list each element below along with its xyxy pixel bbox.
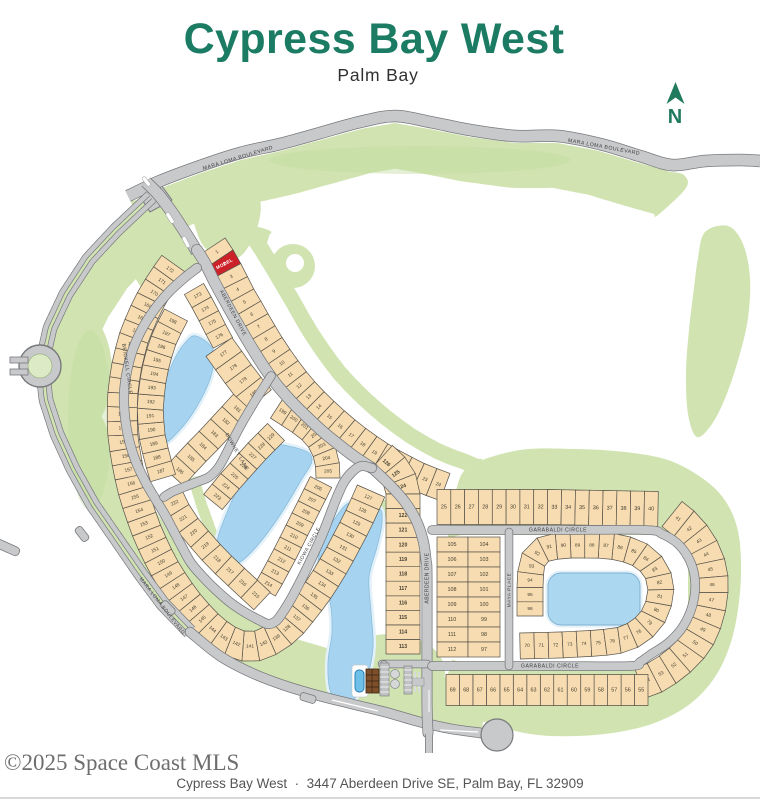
svg-text:57: 57 [611, 687, 617, 693]
svg-text:192: 192 [147, 399, 156, 406]
svg-text:117: 117 [399, 586, 407, 592]
svg-text:26: 26 [455, 504, 461, 510]
svg-text:97: 97 [481, 647, 487, 653]
svg-text:109: 109 [448, 602, 457, 608]
svg-text:104: 104 [480, 542, 489, 548]
svg-text:118: 118 [399, 571, 407, 577]
svg-text:89: 89 [575, 542, 581, 548]
svg-text:94: 94 [527, 578, 533, 584]
svg-text:110: 110 [448, 617, 457, 623]
svg-text:31: 31 [524, 504, 530, 510]
svg-text:36: 36 [593, 505, 599, 511]
svg-text:55: 55 [638, 687, 644, 693]
svg-text:56: 56 [625, 687, 631, 693]
svg-text:113: 113 [399, 644, 407, 650]
svg-text:107: 107 [448, 572, 457, 578]
svg-text:65: 65 [504, 687, 510, 693]
svg-text:27: 27 [469, 504, 475, 510]
svg-text:99: 99 [481, 617, 487, 623]
svg-text:Cypress Bay West: Cypress Bay West [184, 15, 565, 63]
svg-text:Palm Bay: Palm Bay [337, 65, 418, 85]
svg-text:46: 46 [709, 582, 715, 588]
svg-text:N: N [668, 106, 682, 128]
svg-text:191: 191 [146, 413, 155, 420]
svg-text:68: 68 [463, 687, 469, 693]
svg-text:35: 35 [579, 505, 585, 511]
svg-text:93: 93 [528, 563, 534, 570]
svg-text:64: 64 [517, 687, 523, 693]
svg-text:112: 112 [448, 647, 457, 653]
svg-text:95: 95 [527, 592, 533, 598]
svg-text:193: 193 [148, 385, 157, 392]
svg-text:58: 58 [598, 687, 604, 693]
svg-text:29: 29 [496, 504, 502, 510]
svg-text:71: 71 [539, 643, 545, 649]
svg-text:87: 87 [603, 543, 609, 550]
svg-text:115: 115 [399, 615, 407, 621]
svg-text:61: 61 [558, 687, 564, 693]
svg-text:74: 74 [581, 641, 587, 647]
svg-text:GARABALDI CIRCLE: GARABALDI CIRCLE [521, 663, 579, 669]
svg-text:Cypress Bay West · 3447 Aber: Cypress Bay West · 3447 Aberdeen Drive S… [176, 776, 583, 791]
svg-text:90: 90 [560, 543, 566, 549]
svg-text:66: 66 [490, 687, 496, 693]
svg-text:205: 205 [324, 469, 332, 475]
svg-text:106: 106 [448, 557, 457, 563]
svg-text:108: 108 [448, 587, 457, 593]
svg-text:34: 34 [565, 505, 571, 511]
svg-text:88: 88 [589, 542, 595, 548]
svg-text:©2025 Space Coast MLS: ©2025 Space Coast MLS [4, 750, 239, 775]
svg-text:60: 60 [571, 687, 577, 693]
svg-text:98: 98 [481, 632, 487, 638]
svg-text:25: 25 [441, 504, 447, 510]
svg-text:141: 141 [246, 643, 254, 649]
svg-text:121: 121 [399, 528, 408, 534]
svg-text:122: 122 [399, 513, 408, 519]
svg-text:62: 62 [544, 687, 550, 693]
svg-text:32: 32 [538, 504, 544, 510]
svg-text:67: 67 [477, 687, 483, 693]
svg-text:119: 119 [399, 557, 407, 563]
svg-text:100: 100 [480, 602, 489, 608]
svg-text:75: 75 [595, 640, 601, 646]
svg-text:114: 114 [399, 630, 407, 636]
svg-text:73: 73 [567, 642, 573, 648]
svg-text:101: 101 [480, 587, 489, 593]
svg-text:105: 105 [448, 542, 457, 548]
svg-text:63: 63 [531, 687, 537, 693]
svg-text:MAYA PLACE: MAYA PLACE [506, 573, 512, 608]
svg-text:ABERDEEN DRIVE: ABERDEEN DRIVE [424, 552, 430, 603]
svg-text:120: 120 [399, 542, 408, 548]
svg-text:103: 103 [480, 557, 489, 563]
svg-text:59: 59 [584, 687, 590, 693]
svg-text:190: 190 [147, 427, 156, 434]
svg-text:111: 111 [448, 632, 456, 638]
svg-text:116: 116 [399, 600, 407, 606]
svg-text:72: 72 [553, 642, 559, 648]
svg-text:28: 28 [482, 504, 488, 510]
svg-text:38: 38 [620, 506, 626, 512]
svg-text:69: 69 [450, 687, 456, 693]
svg-text:30: 30 [510, 504, 516, 510]
svg-text:96: 96 [527, 606, 533, 612]
svg-text:40: 40 [648, 506, 654, 512]
svg-text:GARABALDI CIRCLE: GARABALDI CIRCLE [529, 527, 587, 533]
svg-text:33: 33 [551, 504, 557, 510]
svg-text:39: 39 [634, 506, 640, 512]
svg-text:102: 102 [480, 572, 489, 578]
svg-text:37: 37 [607, 505, 613, 511]
svg-text:70: 70 [524, 643, 530, 649]
